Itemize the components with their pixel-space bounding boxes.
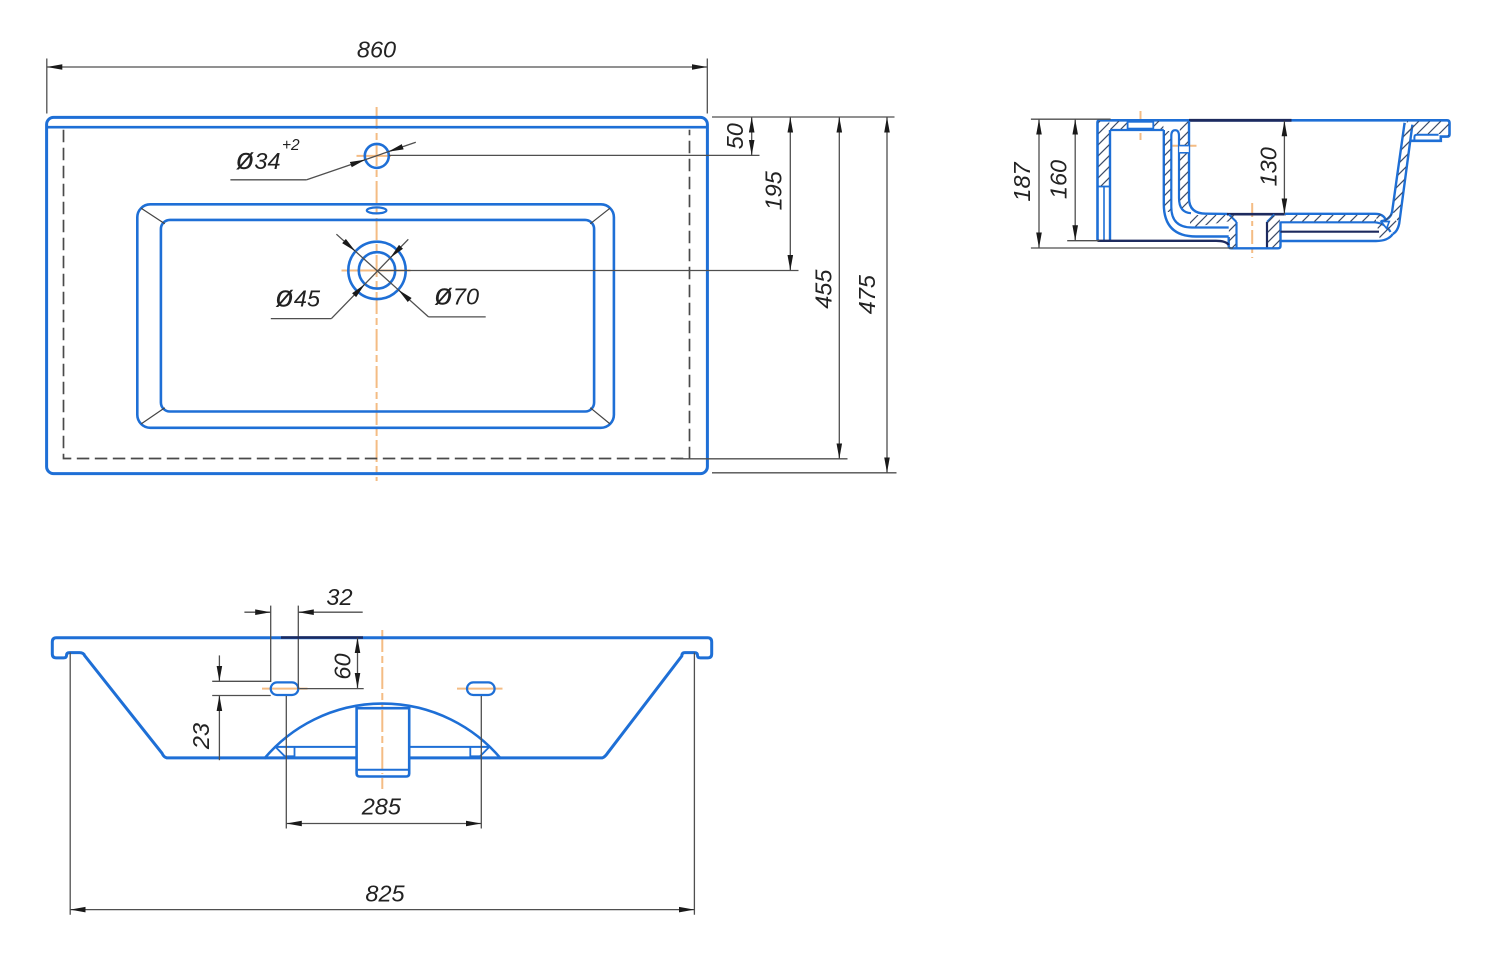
svg-text:+2: +2	[282, 137, 300, 154]
svg-text:160: 160	[1045, 160, 1071, 199]
svg-text:60: 60	[329, 653, 355, 679]
svg-text:32: 32	[326, 584, 352, 610]
svg-text:475: 475	[854, 274, 880, 314]
svg-text:455: 455	[810, 269, 836, 309]
svg-text:860: 860	[357, 36, 396, 62]
svg-text:50: 50	[722, 123, 748, 149]
svg-text:23: 23	[188, 723, 214, 750]
svg-text:195: 195	[760, 170, 786, 210]
svg-text:130: 130	[1255, 147, 1281, 186]
svg-text:285: 285	[361, 793, 402, 819]
svg-text:187: 187	[1009, 161, 1035, 201]
svg-text:825: 825	[365, 880, 405, 906]
